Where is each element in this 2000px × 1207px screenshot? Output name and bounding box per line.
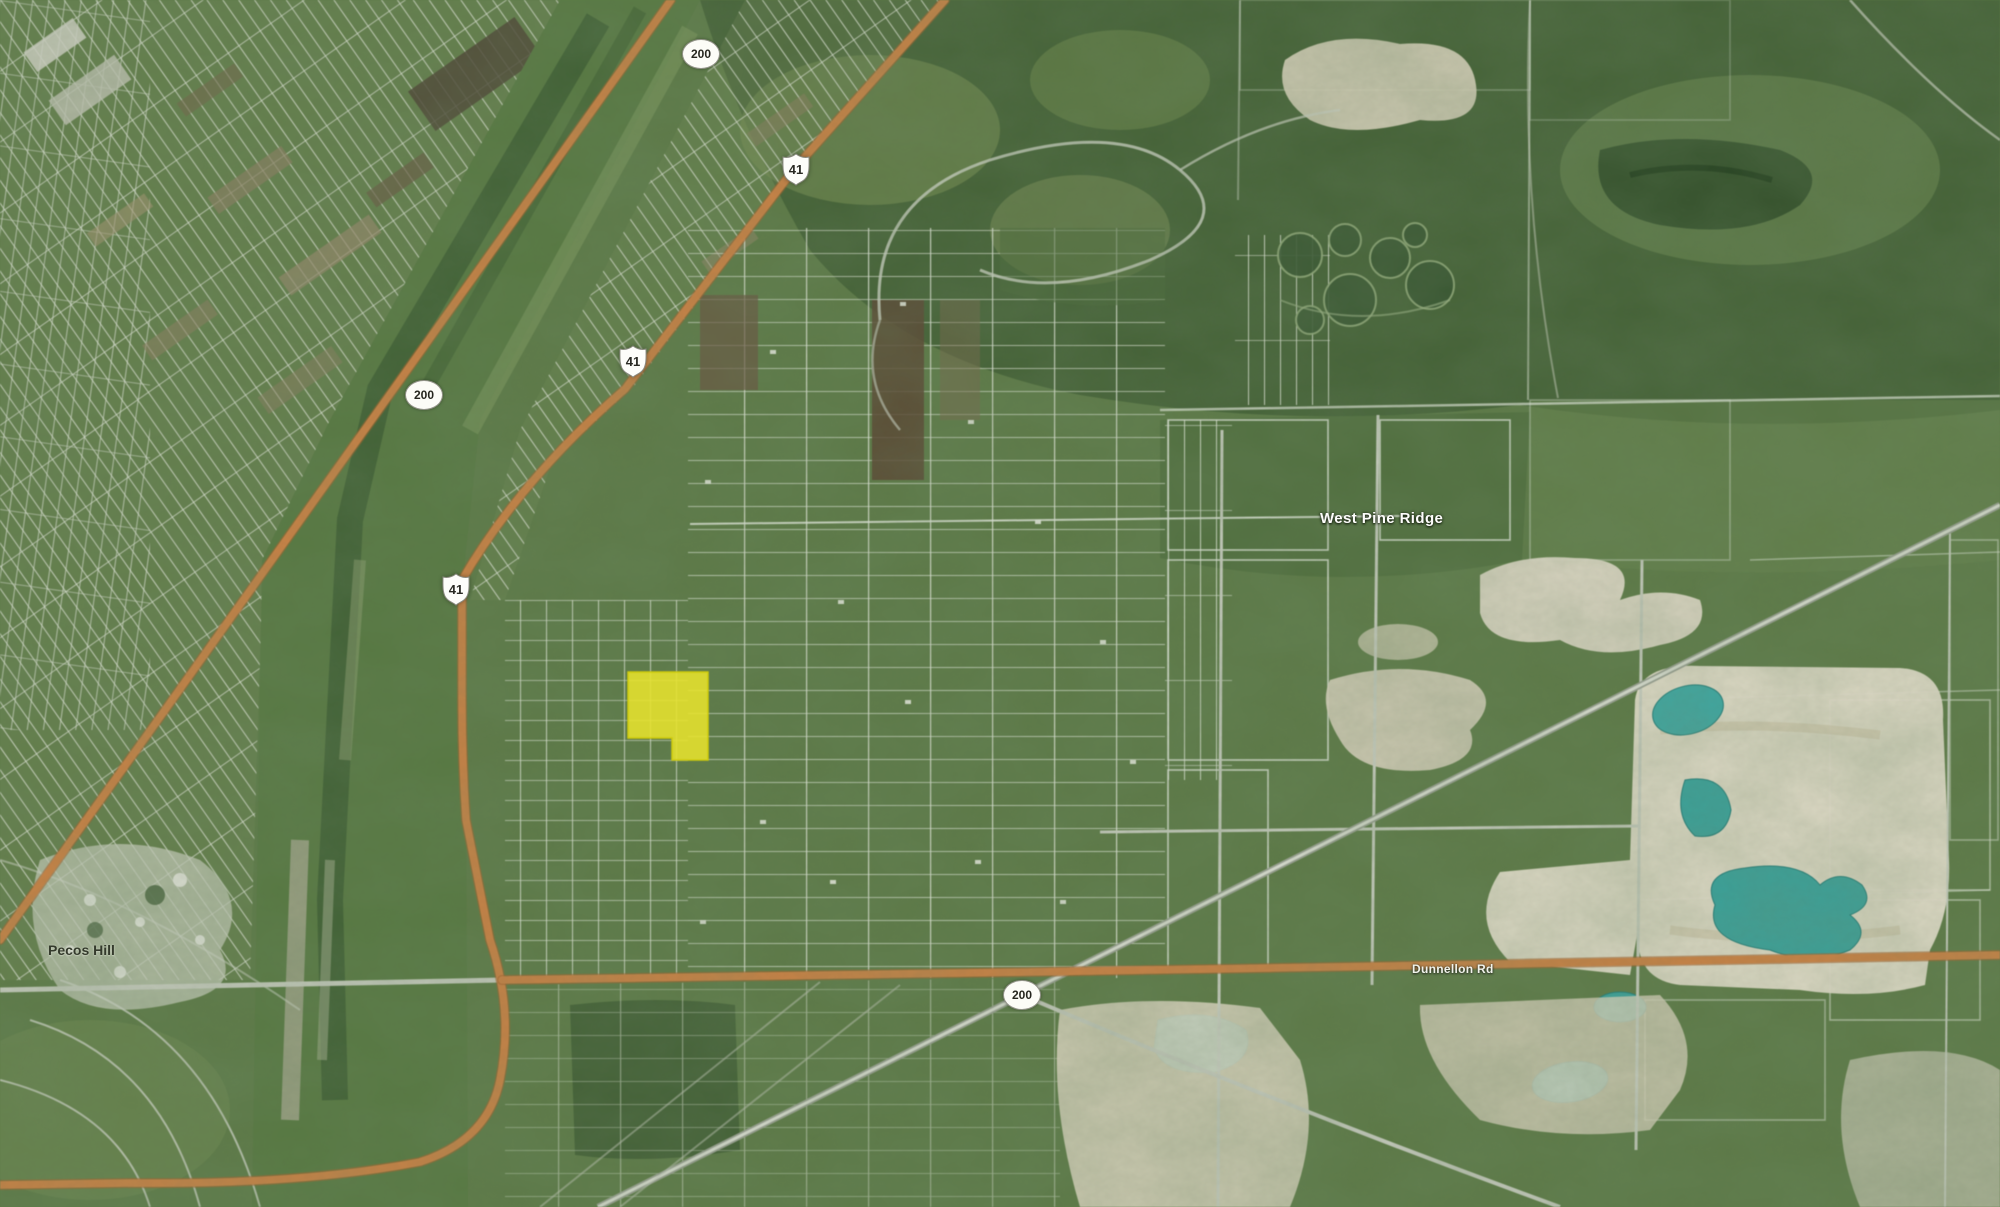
satellite-imagery xyxy=(0,0,2000,1207)
satellite-map[interactable]: 200 200 200 41 41 41 West Pine Ridge Pec… xyxy=(0,0,2000,1207)
